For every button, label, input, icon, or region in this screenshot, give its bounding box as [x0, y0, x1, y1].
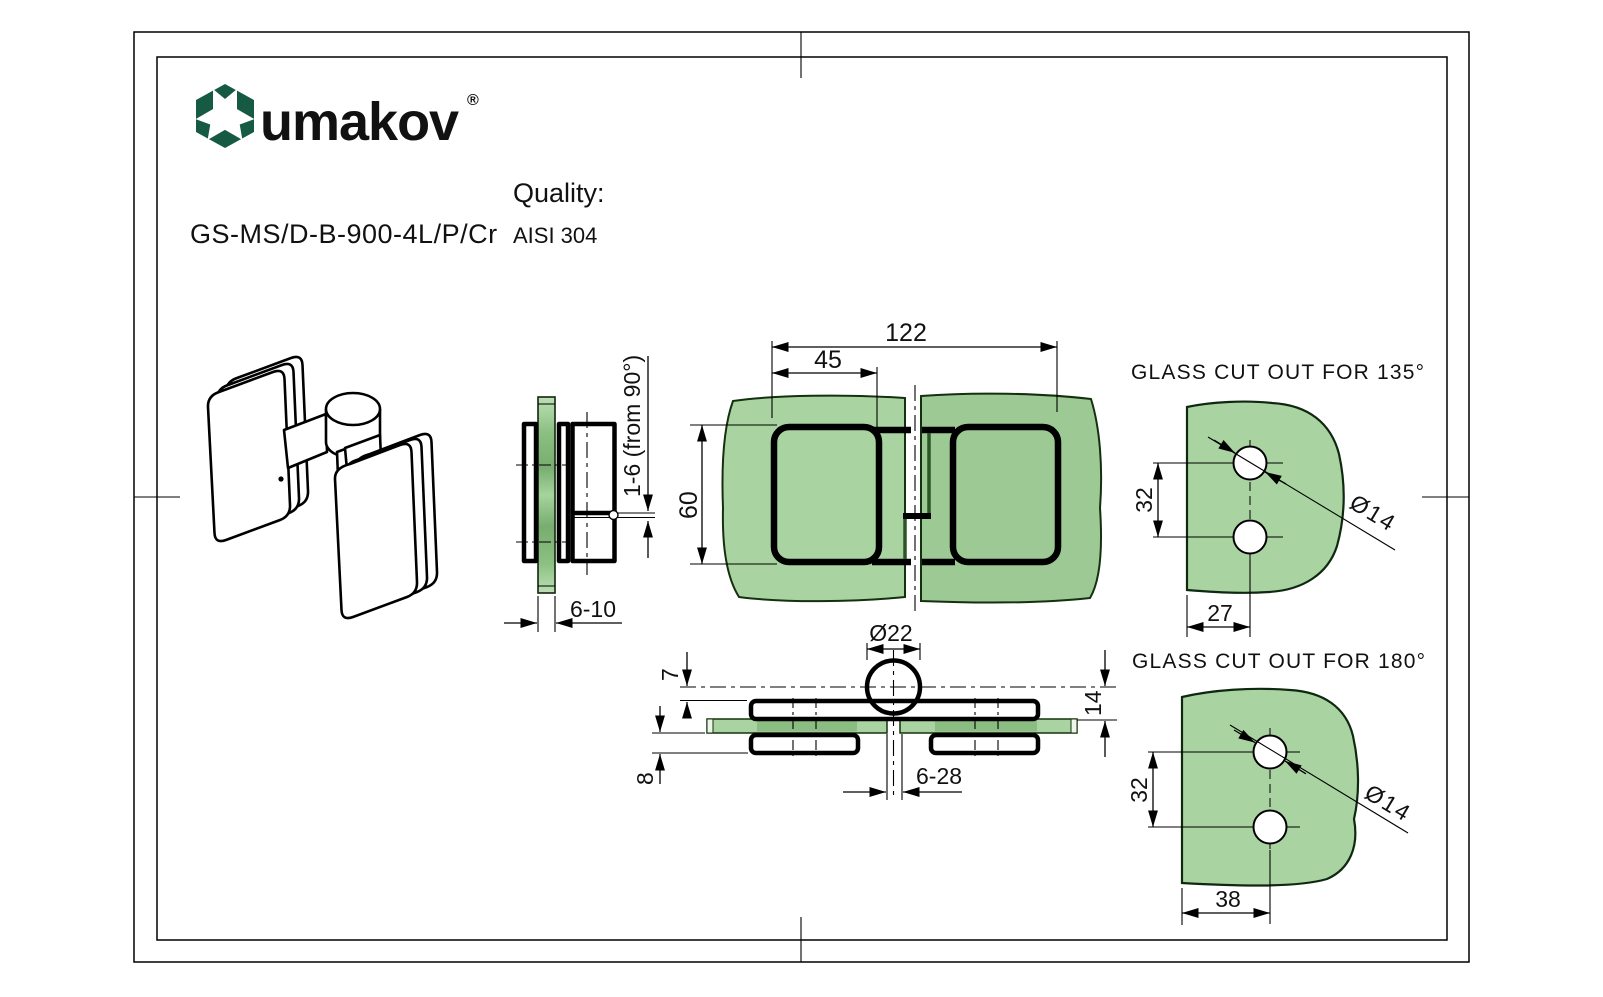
dim-hole-spacing-135: 32 — [1131, 463, 1158, 537]
bottom-plate-right — [931, 735, 1038, 753]
svg-text:8: 8 — [632, 772, 658, 785]
front-view: 122 45 60 — [675, 319, 1101, 612]
glass-shade — [935, 721, 1037, 732]
hole-bottom — [1234, 521, 1267, 554]
quality-value: AISI 304 — [513, 223, 597, 248]
svg-text:32: 32 — [1126, 777, 1152, 803]
dim-offset-bottom: 8 — [632, 706, 748, 785]
dim-edge-180: 38 — [1182, 886, 1270, 925]
svg-text:Ø14: Ø14 — [1360, 779, 1416, 827]
hole-bottom — [1254, 811, 1287, 844]
registered-mark: ® — [467, 92, 479, 109]
svg-text:7: 7 — [657, 668, 683, 681]
cutout-180-view: GLASS CUT OUT FOR 180° 32 38 Ø14 — [1126, 650, 1426, 925]
drawing-svg: umakov ® GS-MS/D-B-900-4L/P/Cr Quality: … — [0, 0, 1603, 997]
svg-text:32: 32 — [1131, 487, 1157, 513]
isometric-view — [208, 357, 437, 618]
brand-logo: umakov ® — [196, 84, 479, 152]
svg-text:122: 122 — [885, 319, 927, 347]
dim-glass-gap: 6-28 — [843, 734, 962, 800]
screw-dot — [278, 476, 283, 481]
hinge-body — [573, 424, 615, 561]
svg-text:1-6 (from 90°): 1-6 (from 90°) — [619, 355, 645, 497]
product-code: GS-MS/D-B-900-4L/P/Cr — [190, 219, 498, 249]
svg-text:14: 14 — [1080, 690, 1106, 716]
top-plate — [751, 701, 1038, 719]
svg-text:6-10: 6-10 — [570, 596, 616, 622]
clamp-pad-right — [559, 424, 568, 561]
dim-offset-top: 7 — [657, 652, 747, 714]
glass-blank-135 — [1187, 402, 1344, 593]
svg-text:38: 38 — [1215, 886, 1241, 912]
cutout-135-view: GLASS CUT OUT FOR 135° 32 27 Ø14 — [1131, 361, 1425, 637]
cutout-135-title: GLASS CUT OUT FOR 135° — [1131, 361, 1425, 384]
cutout-180-title: GLASS CUT OUT FOR 180° — [1132, 650, 1426, 673]
dim-axis-to-glass: 14 — [1077, 650, 1117, 757]
dim-edge-135: 27 — [1187, 595, 1250, 637]
glass-shade — [757, 721, 857, 732]
svg-text:27: 27 — [1207, 600, 1233, 626]
glass-edge — [538, 397, 555, 593]
svg-text:45: 45 — [814, 346, 842, 374]
quality-label: Quality: — [513, 178, 605, 208]
hole-top — [1254, 736, 1287, 769]
technical-drawing-sheet: umakov ® GS-MS/D-B-900-4L/P/Cr Quality: … — [0, 0, 1603, 997]
side-view: 1-6 (from 90°) 6-10 — [504, 355, 655, 632]
bottom-view: Ø22 7 8 14 6-28 — [632, 620, 1117, 800]
brand-name: umakov — [260, 92, 459, 152]
clamp-plate-left — [524, 424, 536, 561]
dim-hole-spacing-180: 32 — [1126, 752, 1153, 827]
dim-glass-thickness: 6-10 — [504, 596, 622, 632]
svg-text:60: 60 — [675, 491, 703, 519]
svg-text:Ø14: Ø14 — [1345, 489, 1401, 537]
svg-text:Ø22: Ø22 — [869, 620, 912, 646]
bottom-plate-left — [751, 735, 858, 753]
svg-text:6-28: 6-28 — [916, 763, 962, 789]
